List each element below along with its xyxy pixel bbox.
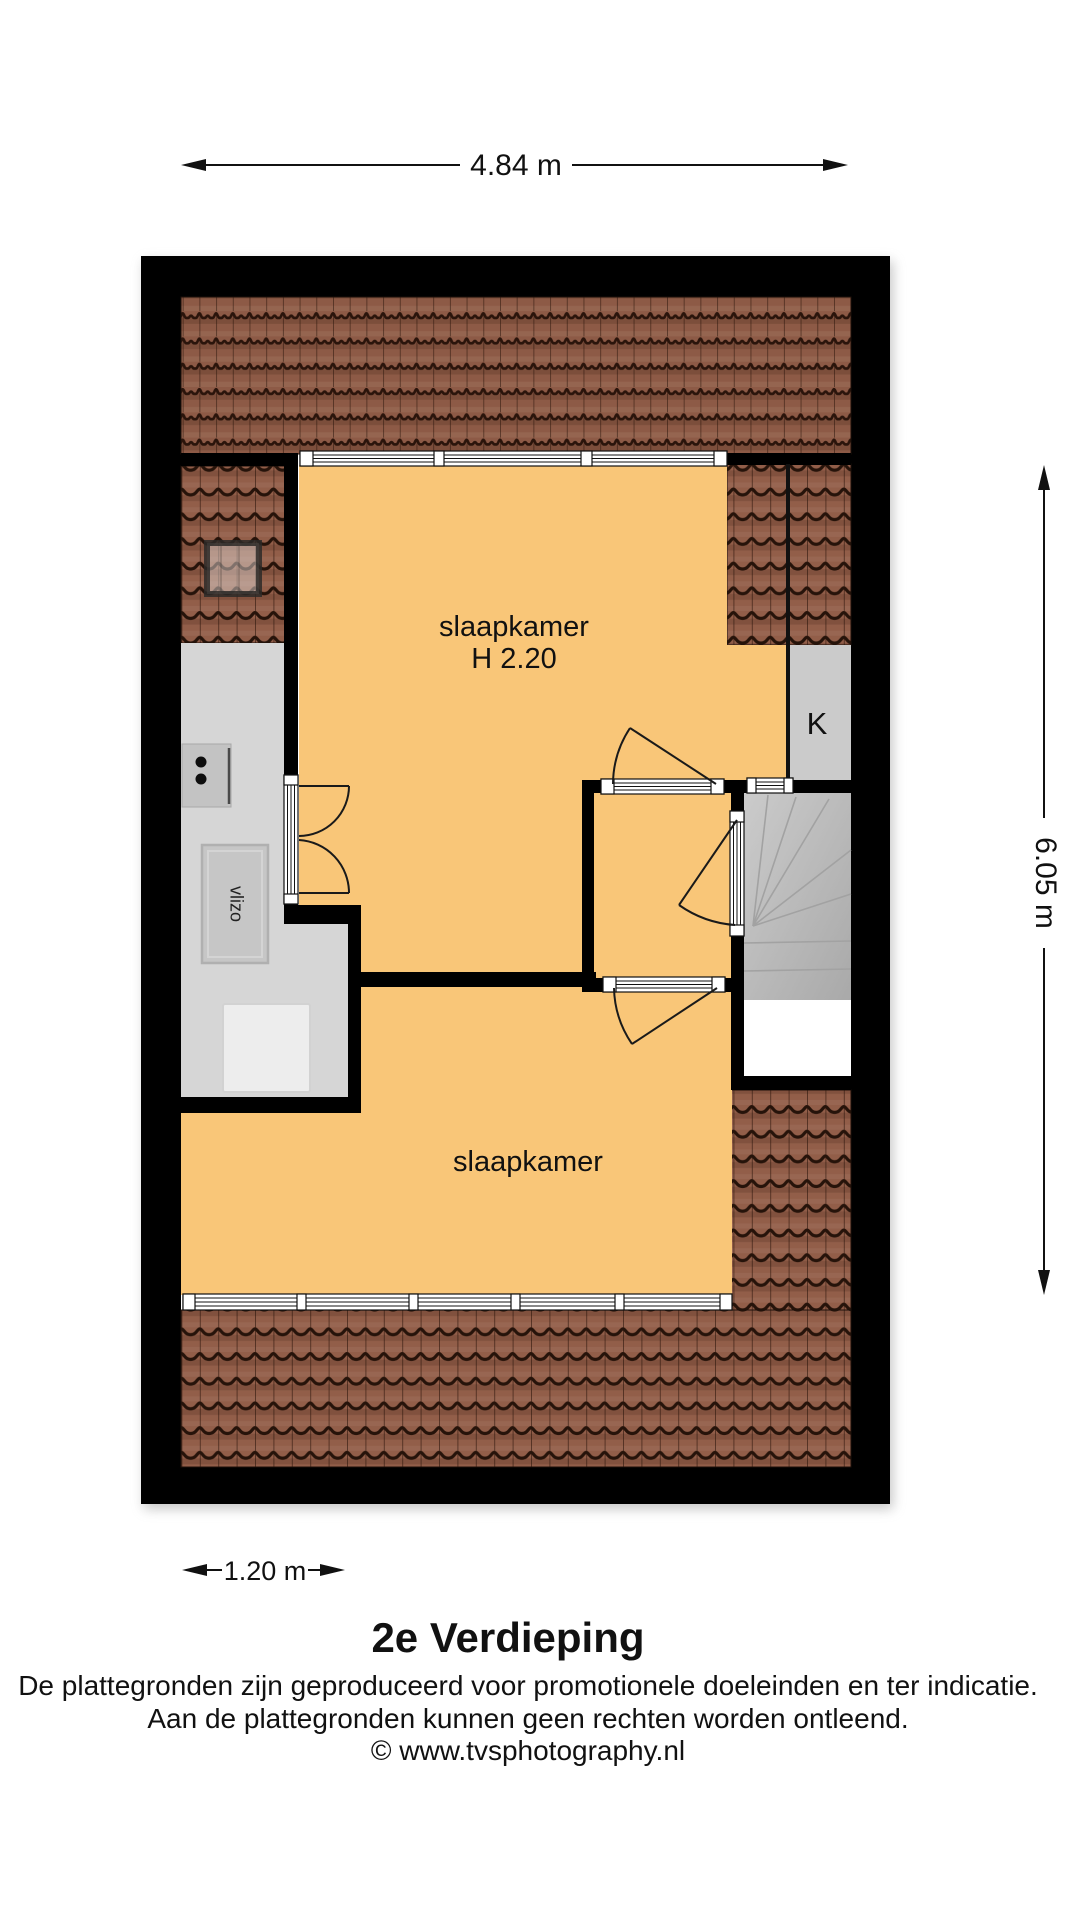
svg-text:slaapkamer: slaapkamer (439, 611, 589, 643)
svg-text:© www.tvsphotography.nl: © www.tvsphotography.nl (371, 1735, 685, 1766)
svg-text:K: K (807, 706, 828, 741)
svg-text:vlizo: vlizo (226, 886, 246, 922)
svg-text:slaapkamer: slaapkamer (453, 1146, 603, 1178)
svg-text:6.05 m: 6.05 m (1029, 837, 1062, 929)
svg-text:H 2.20: H 2.20 (471, 643, 556, 675)
svg-text:4.84 m: 4.84 m (470, 149, 562, 182)
svg-text:De plattegronden zijn geproduc: De plattegronden zijn geproduceerd voor … (18, 1670, 1038, 1701)
svg-text:2e Verdieping: 2e Verdieping (371, 1614, 644, 1661)
svg-text:1.20 m: 1.20 m (224, 1556, 307, 1586)
svg-text:Aan de plattegronden kunnen ge: Aan de plattegronden kunnen geen rechten… (147, 1703, 908, 1734)
